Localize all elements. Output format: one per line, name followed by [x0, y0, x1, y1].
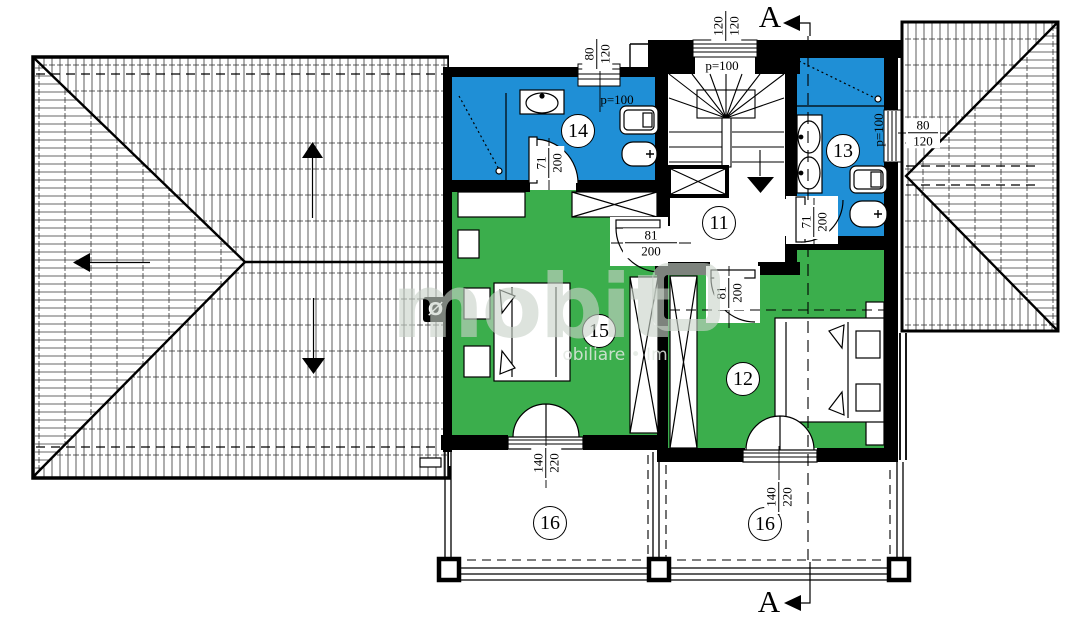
dim-window-bath14: 80120 [582, 37, 612, 71]
parapet-label-bath14: p=100 [600, 92, 633, 108]
room-label-11: 11 [702, 206, 736, 240]
right-roof [902, 22, 1058, 331]
section-marker-a-bottom: A [758, 584, 780, 620]
dim-door-bed12: 81200 [714, 276, 744, 310]
floor-plan-drawing: 11 12 13 14 15 16 16 80120 120120 80120 … [0, 0, 1077, 626]
tall-wardrobe [630, 277, 658, 433]
bidet-icon [622, 142, 657, 166]
room-label-12: 12 [726, 362, 760, 396]
dim-french-door-bed15: 140220 [531, 446, 561, 480]
room-label-16-left: 16 [533, 506, 567, 540]
dim-door-bed15: 81200 [623, 228, 679, 258]
tall-wardrobe [670, 276, 697, 448]
bathtub-icon [620, 106, 658, 134]
room-label-14: 14 [561, 114, 595, 148]
sink-icon [797, 115, 822, 193]
sink-icon [520, 90, 564, 114]
column [889, 559, 909, 580]
column [649, 559, 669, 580]
left-roof [33, 57, 449, 478]
section-arrow-top [783, 15, 800, 31]
dim-door-bath13: 71200 [799, 205, 829, 239]
section-arrow-bottom [784, 595, 801, 611]
nightstand [464, 346, 490, 377]
dim-window-stairs: 120120 [711, 9, 741, 43]
bidet-icon [850, 201, 887, 227]
column [439, 559, 459, 580]
bathtub-icon [850, 166, 887, 193]
exterior-ledge [420, 458, 441, 467]
nightstand [464, 288, 490, 319]
dim-french-door-bed12: 140220 [764, 480, 794, 514]
wardrobe [572, 192, 657, 217]
section-marker-a-top: A [759, 0, 781, 35]
dim-door-bath14: 71200 [534, 146, 564, 180]
parapet-label-stairs: p=100 [705, 58, 738, 74]
nightstand [856, 331, 880, 358]
shelf [866, 420, 884, 445]
drain-symbol: Ø [423, 297, 448, 322]
room-label-13: 13 [826, 134, 860, 168]
dim-window-bath13: 80120 [906, 118, 940, 148]
dresser [458, 192, 525, 217]
cabinet [458, 230, 479, 258]
room-label-15: 15 [582, 314, 616, 348]
double-bed-icon [775, 318, 884, 422]
nightstand [856, 384, 880, 411]
parapet-label-bath13: p=100 [871, 113, 887, 146]
